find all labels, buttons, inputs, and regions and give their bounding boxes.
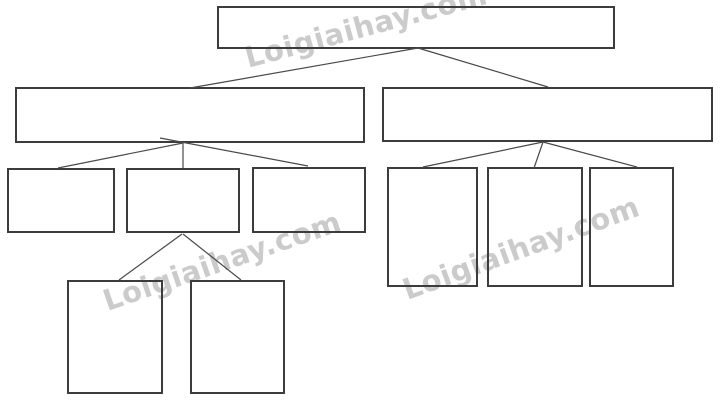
diagram-canvas: Loigiaihay.com Loigiaihay.com Loigiaihay…: [0, 0, 720, 403]
connector-root-to-branch-right: [418, 48, 548, 87]
connector-left-child-2-to-grandchild-2: [183, 234, 241, 280]
connector-branch-right-to-right-child-2: [534, 142, 543, 168]
node-grandchild-1: [67, 280, 163, 394]
connector-branch-right-to-right-child-1: [423, 142, 543, 167]
connector-root-to-branch-left: [190, 48, 418, 88]
connector-branch-right-to-right-child-3: [543, 142, 637, 167]
node-right-child-2: [487, 167, 583, 287]
node-right-child-1: [387, 167, 478, 287]
node-branch-left: [15, 87, 365, 143]
node-left-child-2: [126, 168, 240, 233]
node-right-child-3: [589, 167, 674, 287]
node-left-child-3: [252, 167, 366, 233]
connector-left-child-2-to-grandchild-1: [119, 234, 182, 280]
connector-branch-left-to-left-child-1: [58, 143, 183, 168]
node-branch-right: [382, 87, 713, 142]
node-left-child-1: [7, 168, 115, 233]
node-root: [217, 6, 615, 49]
node-grandchild-2: [190, 280, 285, 394]
